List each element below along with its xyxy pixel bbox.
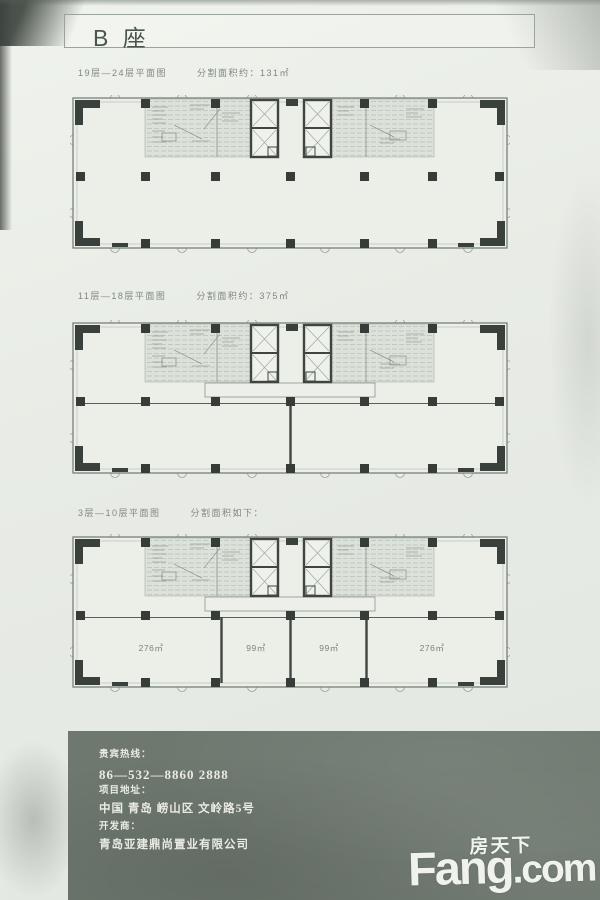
photo-shadow-left-edge [0,0,12,230]
building-title-box: B 座 [64,14,535,48]
hotline-number: 86—532—8860 2888 [99,768,600,787]
floor-plan-3-10: 276㎡ 99㎡ 99㎡ 276㎡ [70,534,510,692]
fang-watermark: 房天下Fang.com [407,837,596,897]
building-title: B 座 [93,19,150,53]
photo-shade-right [548,170,600,510]
address-label: 项目地址： [99,787,600,804]
room-area-1: 276㎡ [139,643,164,653]
floor-plan-11-18 [70,320,510,478]
floor-plan-19-24 [70,95,510,253]
plan-1-area-note: 分割面积约：131㎡ [197,66,290,79]
plan-1-label: 19层—24层平面图 分割面积约：131㎡ [78,66,290,79]
fang-watermark-chinese: 房天下 [469,830,533,859]
plan-2-label: 11层—18层平面图 分割面积约：375㎡ [78,289,289,302]
plan-3-area-note: 分割面积如下： [191,506,265,519]
plan-3-label: 3层—10层平面图 分割面积如下： [78,506,264,519]
flyer-photo: B 座 19层—24层平面图 分割面积约：131㎡ [0,0,600,900]
plan-3-floors: 3层—10层平面图 [78,506,161,519]
room-area-2: 99㎡ [246,643,265,653]
plan-2-floors: 11层—18层平面图 [78,289,166,302]
plan-2-area-note: 分割面积约：375㎡ [196,289,289,302]
address-value: 中国 青岛 崂山区 文岭路5号 [99,804,600,823]
room-area-4: 276㎡ [420,643,445,653]
room-area-3: 99㎡ [319,643,338,653]
hotline-label: 贵宾热线： [99,751,600,768]
plan-1-floors: 19层—24层平面图 [78,66,167,79]
